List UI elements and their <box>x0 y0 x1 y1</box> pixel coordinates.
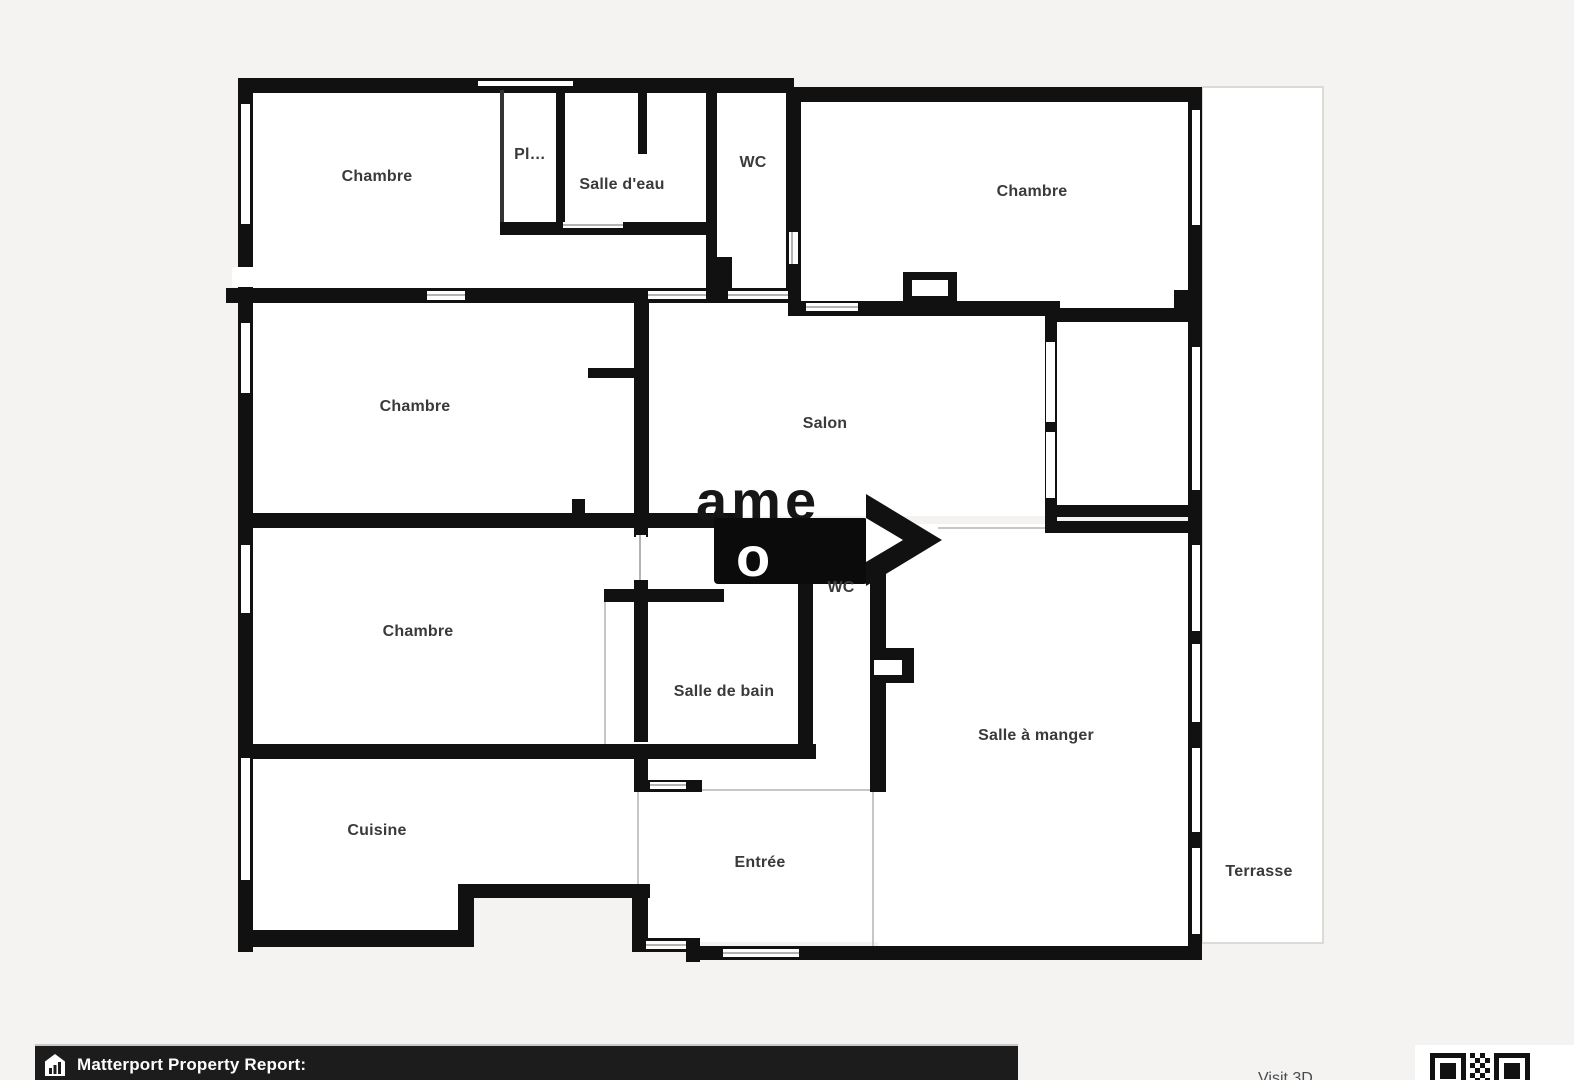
room-label-chambre-top-left: Chambre <box>342 168 413 186</box>
room-label-salle-deau: Salle d'eau <box>579 176 664 194</box>
room-label-chambre-lower: Chambre <box>383 623 454 641</box>
report-bar-label: Matterport Property Report: <box>77 1055 306 1075</box>
floorplan-svg: ame o <box>0 0 1574 1080</box>
matterport-house-icon <box>45 1054 65 1076</box>
room-label-salon: Salon <box>803 415 848 433</box>
property-report-page: ame o Chambre Pl… Salle d'eau WC Chambre… <box>0 0 1574 1080</box>
room-label-wc-top: WC <box>739 154 766 172</box>
room-label-terrasse: Terrasse <box>1225 863 1292 881</box>
matterport-report-bar: Matterport Property Report: <box>35 1044 1018 1080</box>
room-label-salle-de-bain: Salle de bain <box>674 683 774 701</box>
watermark-text-fragment-2: o <box>736 525 770 588</box>
room-label-entree: Entrée <box>735 854 786 872</box>
terrasse-area <box>1202 87 1323 943</box>
room-label-chambre-top-right: Chambre <box>997 183 1068 201</box>
room-label-salle-a-manger: Salle à manger <box>978 727 1094 745</box>
room-label-chambre-middle: Chambre <box>380 398 451 416</box>
room-label-wc-middle: WC <box>827 579 854 597</box>
visit-3d-link[interactable]: Visit 3D <box>1258 1070 1313 1080</box>
room-label-placard: Pl… <box>514 146 546 164</box>
room-label-cuisine: Cuisine <box>347 822 406 840</box>
qr-code <box>1415 1045 1574 1080</box>
